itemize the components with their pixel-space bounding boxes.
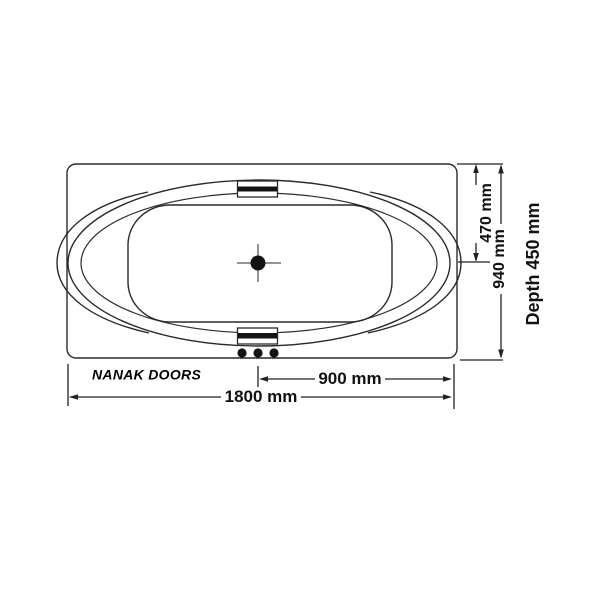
top-headrest-bar xyxy=(238,187,277,192)
tub-body xyxy=(57,164,461,358)
arrow-down-icon xyxy=(473,253,479,262)
drain-circle xyxy=(251,256,266,271)
arrow-right-icon xyxy=(443,376,452,382)
bathtub-technical-drawing: 470 mm 940 mm Depth 450 mm 900 mm 1800 m… xyxy=(0,0,600,600)
top-headrest xyxy=(238,181,278,197)
bottom-headrest-bar xyxy=(238,333,277,339)
dim-label-940mm: 940 mm xyxy=(491,229,508,289)
jet-button-icon xyxy=(237,348,246,357)
jet-buttons xyxy=(237,348,278,357)
jet-button-icon xyxy=(269,348,278,357)
dimension-half-length: 900 mm xyxy=(259,369,452,388)
drawing-canvas: 470 mm 940 mm Depth 450 mm 900 mm 1800 m… xyxy=(0,0,600,600)
dim-label-1800mm: 1800 mm xyxy=(225,387,298,406)
bottom-headrest xyxy=(238,328,278,344)
arrow-left-icon xyxy=(69,394,78,400)
dim-label-depth-450mm: Depth 450 mm xyxy=(523,202,543,325)
arrow-down-icon xyxy=(498,350,504,359)
arrow-right-icon xyxy=(443,394,452,400)
arrow-up-icon xyxy=(498,165,504,174)
arrow-up-icon xyxy=(473,164,479,173)
drain xyxy=(237,244,281,282)
dimension-depth: Depth 450 mm xyxy=(523,202,543,325)
arrow-left-icon xyxy=(259,376,268,382)
jet-button-icon xyxy=(253,348,262,357)
brand-label: NANAK DOORS xyxy=(92,367,201,383)
dimension-overall-length: 1800 mm xyxy=(69,387,452,406)
dim-label-900mm: 900 mm xyxy=(318,369,381,388)
